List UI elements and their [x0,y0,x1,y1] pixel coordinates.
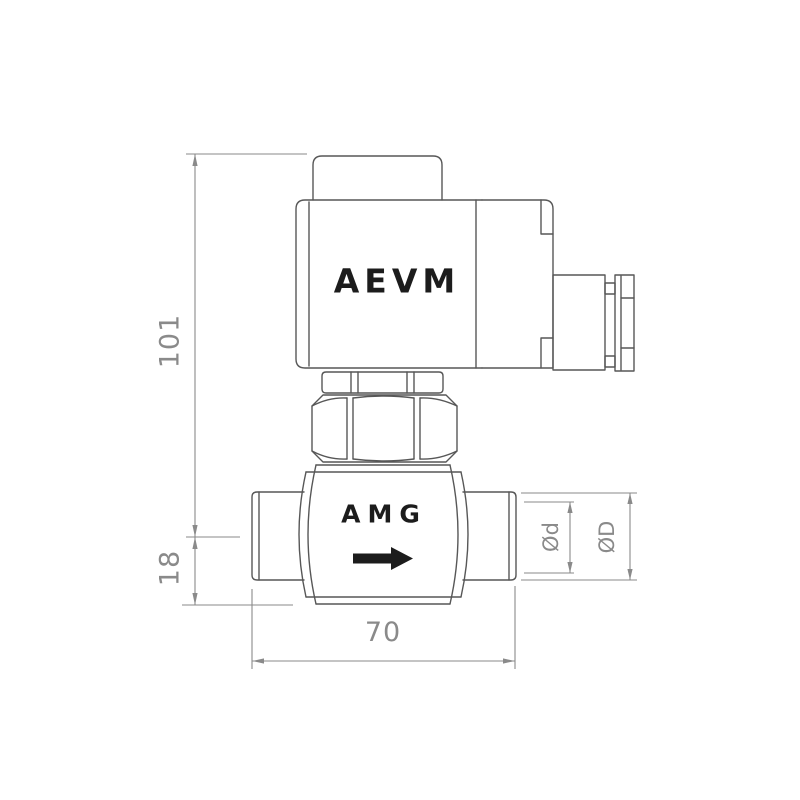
drawing-canvas: AEVM AMG 101 18 70 Ød ØD [0,0,800,800]
dimension-diameters: Ød ØD [521,493,637,580]
flow-right-arrow-icon [353,547,413,570]
din-connector-block [482,200,553,368]
outlet-port [463,492,516,580]
cable-gland [553,275,634,371]
hex-nut [312,395,457,462]
dim-text-outer-diameter: ØD [595,521,619,554]
valve-body [299,465,468,604]
dim-text-70: 70 [365,617,401,648]
dimension-overall-height: 101 18 [155,154,308,605]
coil-cap [313,156,442,200]
union-ring [322,372,443,393]
dim-text-inner-diameter: Ød [539,522,563,552]
body-label: AMG [341,500,427,529]
dim-text-18: 18 [155,550,186,586]
dimension-port-width: 70 [252,586,515,669]
coil-label: AEVM [334,262,460,301]
inlet-port [252,492,304,580]
solenoid-valve-technical-drawing: AEVM AMG 101 18 70 Ød ØD [0,0,800,800]
dim-text-101: 101 [155,314,186,369]
